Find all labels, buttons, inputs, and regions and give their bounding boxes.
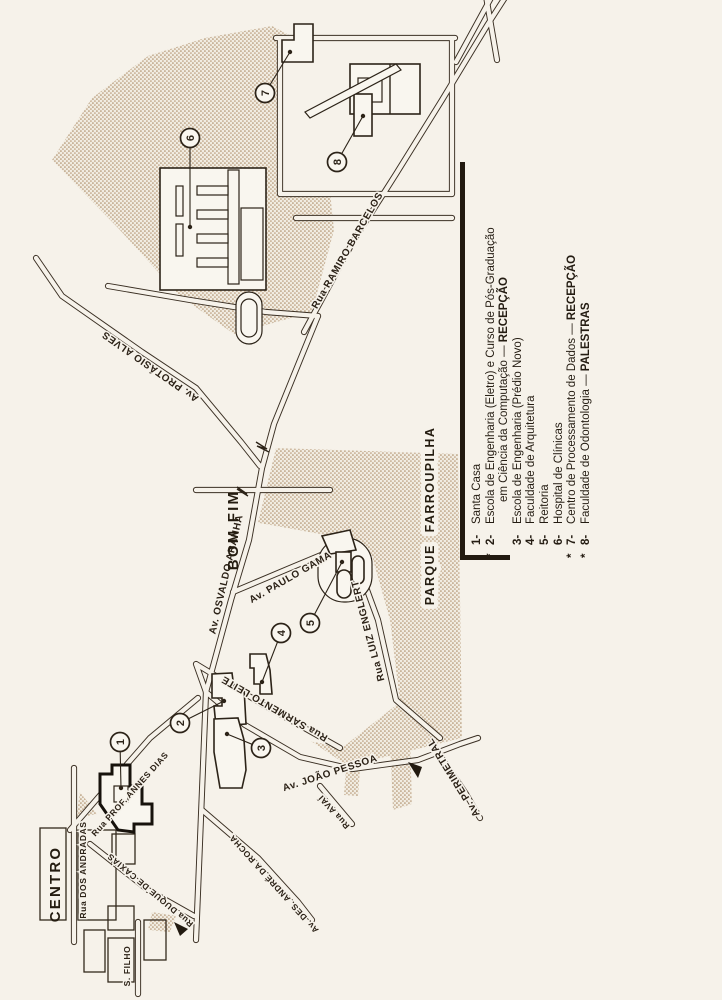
campus-oval-loop-inner: [241, 299, 257, 337]
legend-item-3: 3-Escola de Engenharia (Prédio Novo): [512, 162, 526, 560]
asterisk-marker: *: [485, 554, 499, 558]
legend-number: 7-: [566, 535, 580, 545]
legend-item-2-wrap: em Ciência da Computação — RECEPÇÃO: [498, 162, 512, 560]
street-label-andradas: Rua DOS ANDRADAS: [78, 821, 88, 918]
region-label-centro: CENTRO: [47, 846, 64, 923]
marker-number: 8: [332, 159, 344, 165]
legend-number: 8-: [580, 535, 594, 545]
legend-number: 2-: [485, 535, 499, 545]
legend-rule: [460, 162, 465, 560]
marker-number: 4: [276, 629, 288, 636]
asterisk-marker: *: [566, 554, 580, 558]
legend-number: 3-: [512, 535, 526, 545]
legend-text: Escola de Engenharia (Eletro) e Curso de…: [485, 227, 497, 524]
legend-item-8: * 8-Faculdade de Odontologia — PALESTRAS: [580, 162, 594, 560]
legend-text: Santa Casa: [471, 464, 483, 524]
legend-number: 4-: [525, 535, 539, 545]
map-legend: 1-Santa Casa * 2-Escola de Engenharia (E…: [460, 162, 593, 560]
marker-number: 7: [260, 90, 272, 96]
legend-bold-text: RECEPÇÃO: [498, 277, 510, 342]
marker-number: 3: [256, 745, 268, 751]
legend-number: 5-: [539, 535, 553, 545]
legend-text: em Ciência da Computação —: [498, 342, 510, 502]
street-label-s-filho: S. FILHO: [122, 946, 132, 987]
marker-number: 1: [115, 739, 127, 745]
marker-number: 5: [305, 620, 317, 626]
building-engenharia-predio-novo: [214, 718, 246, 788]
legend-item-6: 6-Hospital de Clínicas: [553, 162, 567, 560]
legend-bold-text: PALESTRAS: [580, 302, 592, 371]
marker-number: 2: [175, 720, 187, 726]
legend-item-4: 4-Faculdade de Arquitetura: [525, 162, 539, 560]
region-label-parque-farroupilha: PARQUE FARROUPILHA: [423, 427, 437, 606]
legend-bold-text: RECEPÇÃO: [566, 255, 578, 320]
asterisk-marker: *: [580, 554, 594, 558]
region-label-bom-fim: BOM FIM: [225, 490, 242, 570]
map-drawing: 1 2 3 4: [0, 0, 722, 1000]
map-rotated-canvas: 1 2 3 4: [0, 0, 722, 1000]
legend-text: Faculdade de Odontologia —: [580, 371, 592, 524]
legend-item-7: * 7-Centro de Processamento de Dados — R…: [566, 162, 580, 560]
legend-text: Reitoria: [539, 484, 551, 524]
legend-text: Hospital de Clínicas: [553, 422, 565, 524]
legend-text: Faculdade de Arquitetura: [525, 395, 537, 524]
legend-item-5: 5-Reitoria: [539, 162, 553, 560]
legend-number: 1-: [471, 535, 485, 545]
legend-text: Centro de Processamento de Dados —: [566, 320, 578, 524]
building-hospital-clinicas: [160, 168, 266, 290]
stipple-patch-perimetral: [390, 738, 412, 810]
marker-number: 6: [185, 135, 197, 141]
legend-text: Escola de Engenharia (Prédio Novo): [512, 337, 524, 524]
legend-item-2: * 2-Escola de Engenharia (Eletro) e Curs…: [485, 162, 499, 560]
scanned-map-page: 1 2 3 4: [0, 0, 722, 1000]
legend-number: 6-: [553, 535, 567, 545]
legend-item-1: 1-Santa Casa: [471, 162, 485, 560]
